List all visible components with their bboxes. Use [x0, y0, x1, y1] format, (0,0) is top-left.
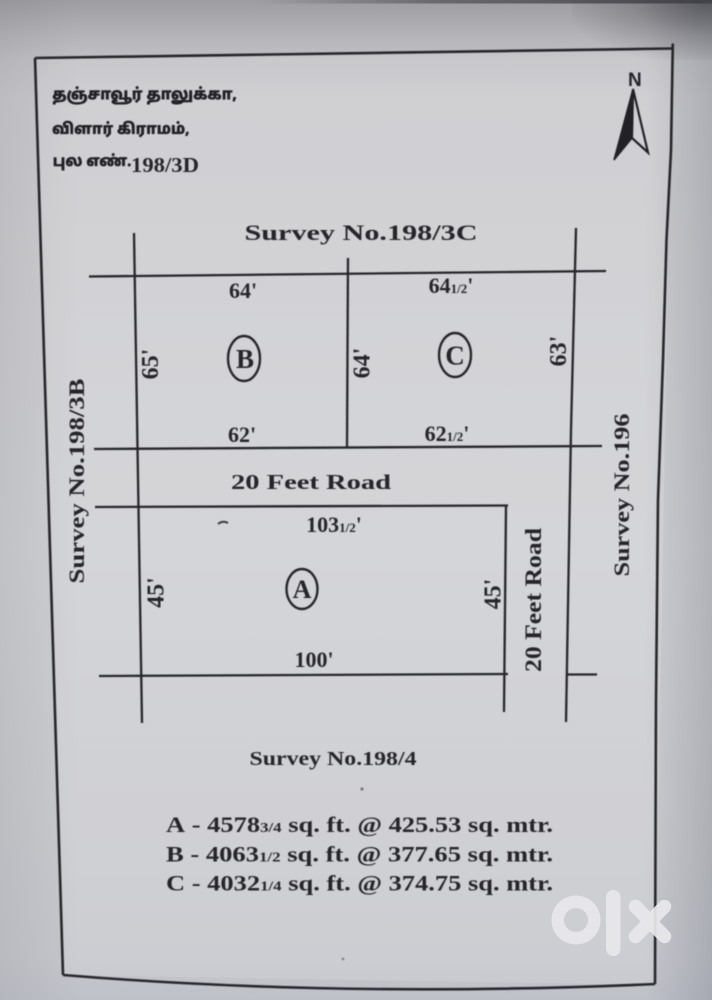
- svg-text:A - 45783/4 sq. ft. @ 425.53 s: A - 45783/4 sq. ft. @ 425.53 sq. mtr.: [166, 812, 553, 837]
- svg-text:N: N: [628, 70, 642, 91]
- svg-text:45': 45': [144, 577, 170, 608]
- svg-text:65': 65': [138, 349, 164, 380]
- svg-text:Survey No.198/3C: Survey No.198/3C: [245, 220, 478, 245]
- svg-text:198/3D: 198/3D: [131, 153, 199, 177]
- svg-text:63': 63': [546, 336, 572, 367]
- svg-text:Survey No.196: Survey No.196: [609, 414, 634, 577]
- svg-text:45': 45': [481, 579, 507, 610]
- svg-text:Survey No.198/3B: Survey No.198/3B: [64, 378, 89, 583]
- svg-text:100': 100': [294, 647, 333, 672]
- svg-text:B - 40631/2 sq. ft. @ 377.65 s: B - 40631/2 sq. ft. @ 377.65 sq. mtr.: [166, 842, 553, 867]
- svg-text:A: A: [293, 575, 312, 604]
- svg-text:B: B: [236, 344, 254, 374]
- svg-text:20 Feet Road: 20 Feet Road: [231, 470, 391, 494]
- svg-text:20 Feet Road: 20 Feet Road: [521, 528, 546, 672]
- svg-text:64': 64': [229, 278, 257, 303]
- svg-text:C: C: [445, 341, 465, 371]
- svg-text:64': 64': [350, 348, 376, 379]
- svg-text:Survey No.198/4: Survey No.198/4: [250, 748, 417, 770]
- svg-text:62': 62': [228, 422, 256, 447]
- svg-text:C - 40321/4 sq. ft. @ 374.75 s: C - 40321/4 sq. ft. @ 374.75 sq. mtr.: [166, 871, 553, 896]
